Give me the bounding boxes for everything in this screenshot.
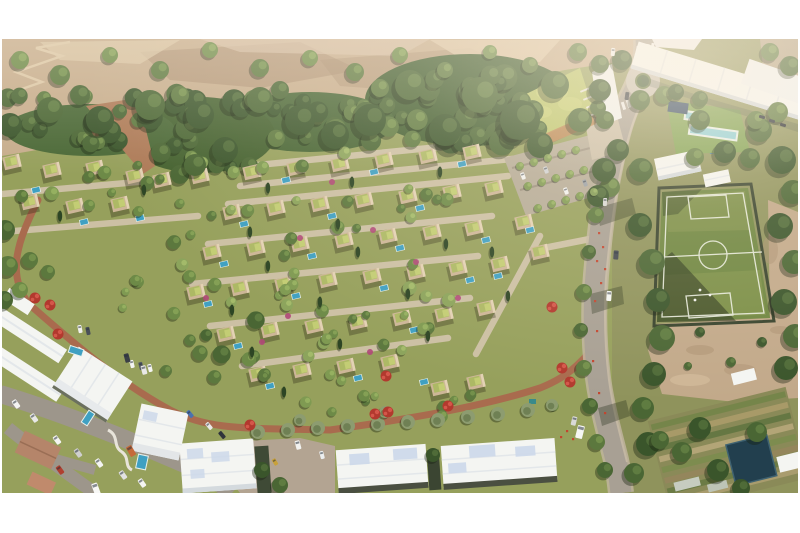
aerial-render-image [0,0,800,533]
aerial-render-svg [0,0,800,533]
top-light-overlay [2,39,798,493]
photo [0,39,800,512]
